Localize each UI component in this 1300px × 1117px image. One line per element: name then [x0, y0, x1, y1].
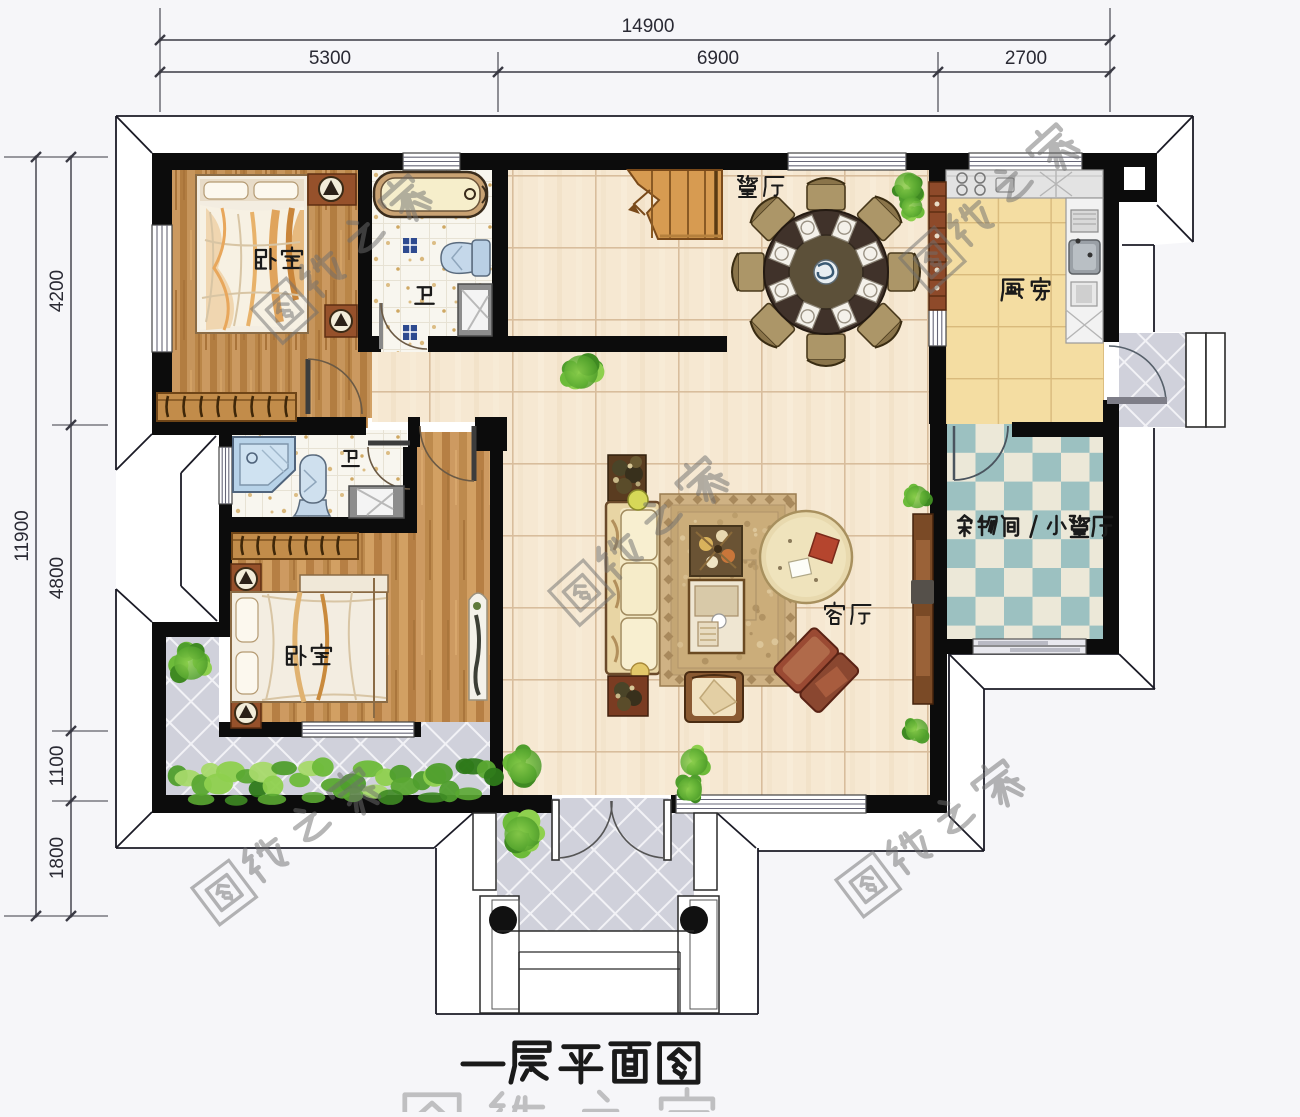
svg-text:4200: 4200 — [47, 270, 68, 312]
svg-text:11900: 11900 — [12, 510, 33, 561]
svg-text:2700: 2700 — [1005, 48, 1047, 69]
svg-text:6900: 6900 — [697, 48, 739, 69]
svg-text:1800: 1800 — [47, 837, 68, 879]
svg-text:5300: 5300 — [309, 48, 351, 69]
svg-text:14900: 14900 — [622, 16, 675, 37]
svg-text:1100: 1100 — [47, 746, 68, 787]
svg-text:4800: 4800 — [47, 557, 68, 599]
